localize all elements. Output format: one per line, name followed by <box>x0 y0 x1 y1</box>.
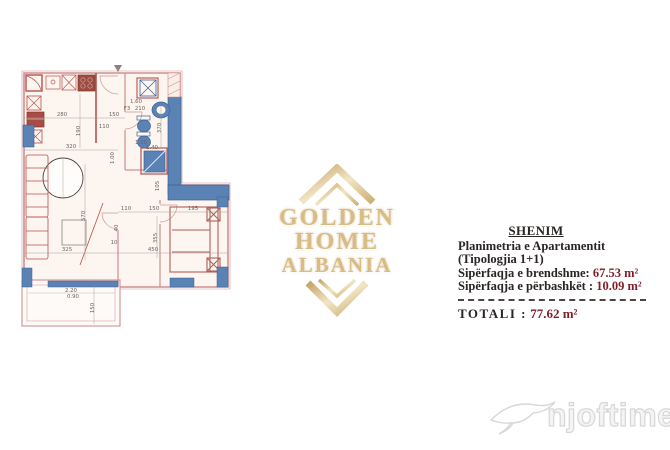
note-line4: Sipërfaqja e përbashkët : 10.09 m² <box>458 280 658 294</box>
dimension-label: 210 <box>135 106 146 112</box>
shower <box>141 148 167 174</box>
dimension-label: 40 <box>114 224 120 231</box>
dimension-label: 450 <box>148 247 159 253</box>
watermark-text: njoftime.al <box>547 397 670 434</box>
logo-line1: GOLDEN HOME <box>236 206 438 254</box>
dimension-label: 150 <box>149 206 160 212</box>
dimension-label: 105 <box>155 181 161 191</box>
chevron-up-icon <box>295 164 379 206</box>
dimension-label: 1.60 <box>130 99 143 105</box>
wall-niche <box>23 125 34 147</box>
dimension-label: 150 <box>109 112 120 118</box>
note-line3-label: Sipërfaqja e brendshme: <box>458 266 590 280</box>
note-line4-value: 10.09 m² <box>596 279 641 293</box>
dimension-label: 190 <box>76 125 82 136</box>
golden-home-logo: GOLDEN HOME ALBANIA <box>236 164 438 317</box>
note-total: TOTALI : 77.62 m² <box>458 307 658 321</box>
dimension-label: 320 <box>66 144 77 150</box>
dimension-label: 1.00 <box>110 151 116 164</box>
dimension-label: 355 <box>153 233 159 243</box>
dimension-label: 325 <box>62 247 72 253</box>
dimension-label: 0.90 <box>67 294 80 300</box>
note-line3: Sipërfaqja e brendshme: 67.53 m² <box>458 267 658 281</box>
dimension-label: 110 <box>99 124 110 130</box>
dashed-separator <box>458 299 646 301</box>
note-line1: Planimetria e Apartamentit <box>458 240 658 254</box>
note-line4-label: Sipërfaqja e përbashkët : <box>458 279 593 293</box>
dimension-label: 1.40 <box>146 145 159 151</box>
hatched-wall <box>168 73 180 97</box>
dimension-label: 195 <box>188 206 198 212</box>
listing-image: 2801501101903201.60210F33701.101.401.001… <box>0 0 670 450</box>
dimension-label: 110 <box>121 206 132 212</box>
note-block: SHENIM Planimetria e Apartamentit (Tipol… <box>458 224 658 320</box>
dimension-label: 570 <box>81 210 87 221</box>
total-value: 77.62 m² <box>530 306 577 321</box>
dimension-label: 280 <box>57 112 68 118</box>
dimension-label: F3 <box>124 106 131 112</box>
dimension-label: 150 <box>90 302 96 313</box>
note-heading: SHENIM <box>458 224 614 238</box>
njoftime-watermark: njoftime.al <box>489 392 670 438</box>
logo-line2: ALBANIA <box>236 255 438 276</box>
chevron-down-icon <box>304 279 370 317</box>
dimension-label: 10 <box>111 240 118 246</box>
floor-plan: 2801501101903201.60210F33701.101.401.001… <box>14 52 236 336</box>
note-line2: (Tipologjia 1+1) <box>458 253 658 267</box>
dimension-label: 370 <box>157 122 163 133</box>
total-label: TOTALI : <box>458 306 527 321</box>
note-line3-value: 67.53 m² <box>593 266 638 280</box>
